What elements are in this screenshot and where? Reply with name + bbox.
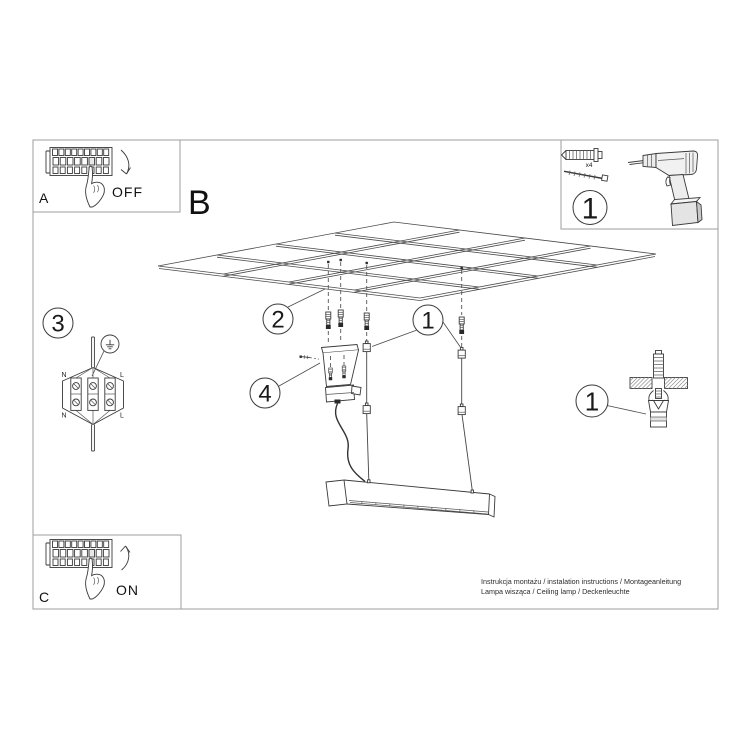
- power-cord: [336, 404, 365, 482]
- suspension-adjuster-icon: [649, 389, 669, 428]
- wiring-callout-number: 3: [51, 311, 64, 338]
- svg-text:4: 4: [258, 381, 271, 408]
- ceiling-screw-icon: [459, 317, 464, 334]
- callout-suspension: 1: [372, 305, 461, 348]
- instruction-drawing: A OFF B x4: [0, 0, 750, 750]
- step-a-label: A: [39, 190, 49, 206]
- cable-gripper-icon: [363, 341, 370, 352]
- arrow-up-icon: [121, 546, 131, 570]
- suspension-left: [363, 341, 370, 480]
- arrow-down-icon: [121, 150, 131, 174]
- screw-icon: [564, 171, 608, 182]
- step-a-panel: A OFF: [33, 140, 180, 212]
- step-c-state: ON: [116, 582, 139, 598]
- linear-pendant-lamp: [326, 480, 495, 517]
- footer-text: Instrukcja montażu / instalation instruc…: [481, 577, 681, 596]
- ceiling-grid: [158, 222, 656, 301]
- fuse-box-icon: [46, 148, 112, 176]
- canopy-screw-icon: [329, 368, 333, 380]
- ceiling-slab-section: [630, 378, 688, 389]
- ceiling-screw-icon: [338, 310, 343, 327]
- anchor-detail: 1: [576, 351, 688, 428]
- suspension-wire: [367, 414, 369, 480]
- canopy-screw-icon: [342, 366, 346, 378]
- wire-label-l-bottom: L: [120, 413, 124, 420]
- step-c-label: C: [39, 589, 49, 605]
- svg-text:2: 2: [271, 307, 284, 334]
- earth-symbol-icon: [92, 335, 119, 376]
- anchor-callout-number: 1: [585, 386, 599, 416]
- footer-line2: Lampa wisząca / Ceiling lamp / Deckenleu…: [481, 587, 630, 596]
- step-c-panel: C ON: [33, 535, 181, 609]
- svg-text:1: 1: [421, 308, 434, 335]
- tools-panel: x4 1: [561, 140, 718, 229]
- cable-gripper-icon: [458, 404, 465, 415]
- wire-label-n-bottom: N: [61, 413, 66, 420]
- tools-callout-number: 1: [582, 192, 599, 225]
- wire-label-l-top: L: [120, 372, 124, 379]
- plug-quantity-label: x4: [586, 162, 593, 169]
- callout-canopy: 4: [250, 363, 320, 408]
- wall-plug-icon: [562, 149, 603, 162]
- ceiling-canopy: [300, 345, 362, 404]
- ceiling-screw-icon: [326, 312, 331, 329]
- drill-icon: [628, 151, 702, 226]
- page-border: [33, 140, 718, 609]
- callout-ceiling: 2: [263, 289, 325, 334]
- suspension-right: [458, 348, 472, 491]
- installation-instruction-sheet: A OFF B x4: [0, 0, 750, 750]
- ceiling-screw-icon: [364, 313, 369, 330]
- wiring-diagram: 3 N L N: [43, 308, 124, 451]
- cable-gripper-icon: [458, 348, 465, 359]
- cable-gripper-icon: [363, 403, 370, 414]
- footer-line1: Instrukcja montażu / instalation instruc…: [481, 577, 681, 586]
- step-b-label: B: [188, 184, 211, 222]
- terminal-block: [71, 378, 115, 410]
- wire-label-n-top: N: [61, 372, 66, 379]
- suspension-wire: [462, 415, 472, 491]
- step-a-state: OFF: [112, 184, 143, 200]
- wall-plug-section-icon: [654, 351, 664, 379]
- grub-screw-icon: [300, 355, 320, 359]
- mounting-drop-lines: [326, 259, 464, 348]
- fuse-box-icon: [46, 540, 112, 568]
